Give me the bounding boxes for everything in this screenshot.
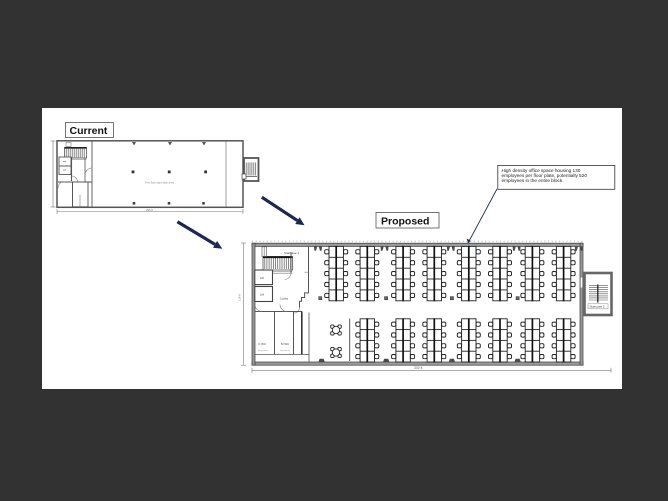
svg-text:Staircase 1: Staircase 1 bbox=[284, 251, 299, 255]
svg-text:F WC: F WC bbox=[259, 342, 267, 346]
svg-text:Proposed: Proposed bbox=[381, 216, 429, 228]
svg-text:First floor open plan area: First floor open plan area bbox=[145, 181, 174, 185]
svg-text:300 ft: 300 ft bbox=[414, 366, 423, 370]
svg-text:118 ft: 118 ft bbox=[238, 294, 242, 301]
svg-text:Staircase 2: Staircase 2 bbox=[590, 305, 605, 309]
svg-text:296 ft: 296 ft bbox=[146, 208, 153, 212]
svg-text:Current: Current bbox=[70, 125, 108, 137]
svg-text:employees in the entire block.: employees in the entire block. bbox=[502, 178, 564, 183]
svg-text:Lobby: Lobby bbox=[280, 297, 289, 301]
svg-text:Lift: Lift bbox=[260, 293, 264, 297]
svg-text:M WC: M WC bbox=[281, 342, 290, 346]
svg-text:Lift: Lift bbox=[260, 276, 264, 280]
